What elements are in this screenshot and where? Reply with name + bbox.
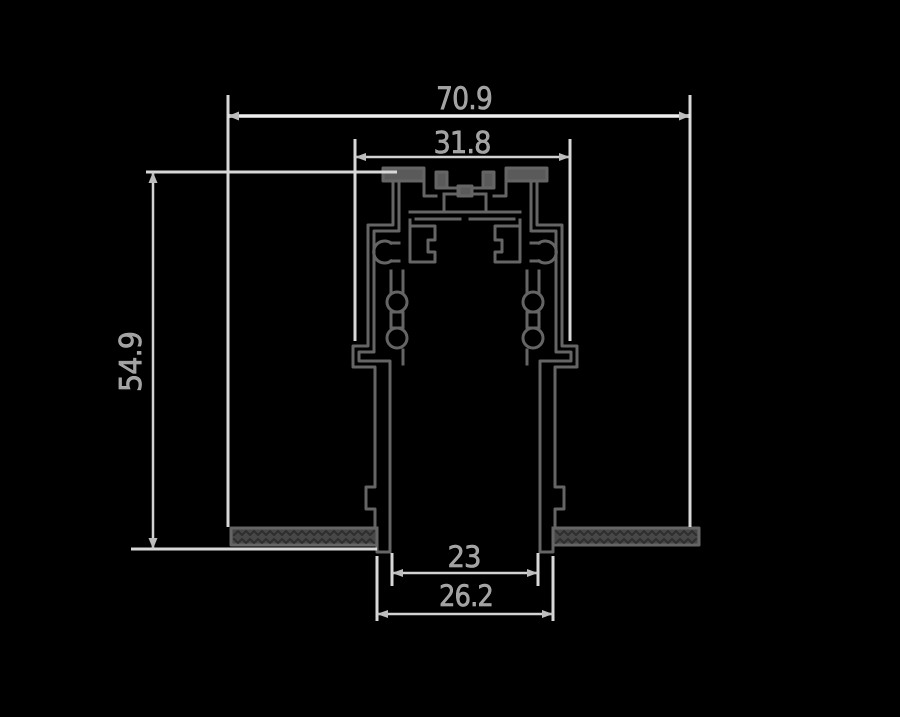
profile-top-bar (383, 168, 424, 181)
profile-drawing: 70.9 31.8 54.9 23 26.2 (0, 0, 900, 717)
label-top-width: 31.8 (434, 126, 491, 161)
label-inner-opening: 23 (448, 540, 481, 574)
boss-slot (391, 312, 403, 328)
mounting-flange (231, 528, 377, 545)
drawing-canvas: 70.9 31.8 54.9 23 26.2 (0, 0, 900, 717)
label-height: 54.9 (114, 332, 149, 392)
label-outer-opening: 26.2 (439, 579, 493, 613)
label-overall-width: 70.9 (436, 81, 492, 117)
profile-top-tab (436, 172, 447, 188)
